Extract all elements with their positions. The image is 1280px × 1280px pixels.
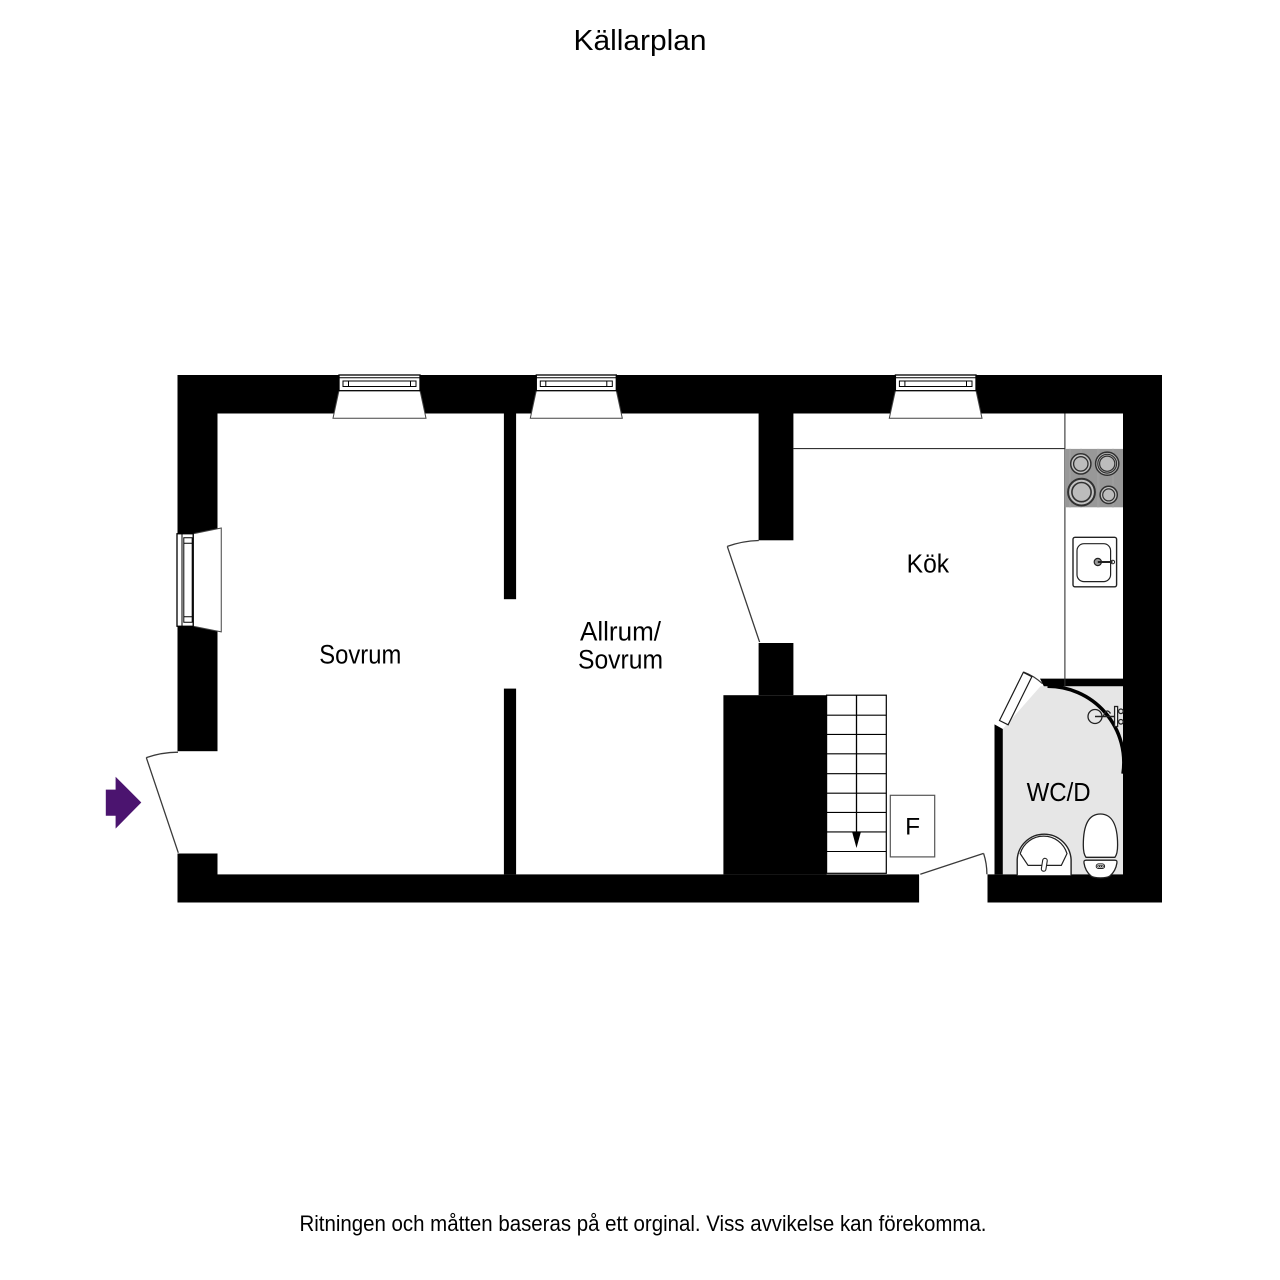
svg-text:F: F	[905, 814, 920, 841]
svg-text:WC/D: WC/D	[1027, 779, 1091, 807]
svg-text:Ritningen och måtten baseras p: Ritningen och måtten baseras på ett orgi…	[300, 1211, 987, 1236]
svg-text:Kök: Kök	[907, 551, 950, 579]
svg-text:Sovrum: Sovrum	[319, 639, 401, 669]
svg-text:Sovrum: Sovrum	[578, 644, 663, 674]
svg-text:Allrum/: Allrum/	[580, 617, 661, 647]
svg-text:Källarplan: Källarplan	[574, 25, 707, 57]
